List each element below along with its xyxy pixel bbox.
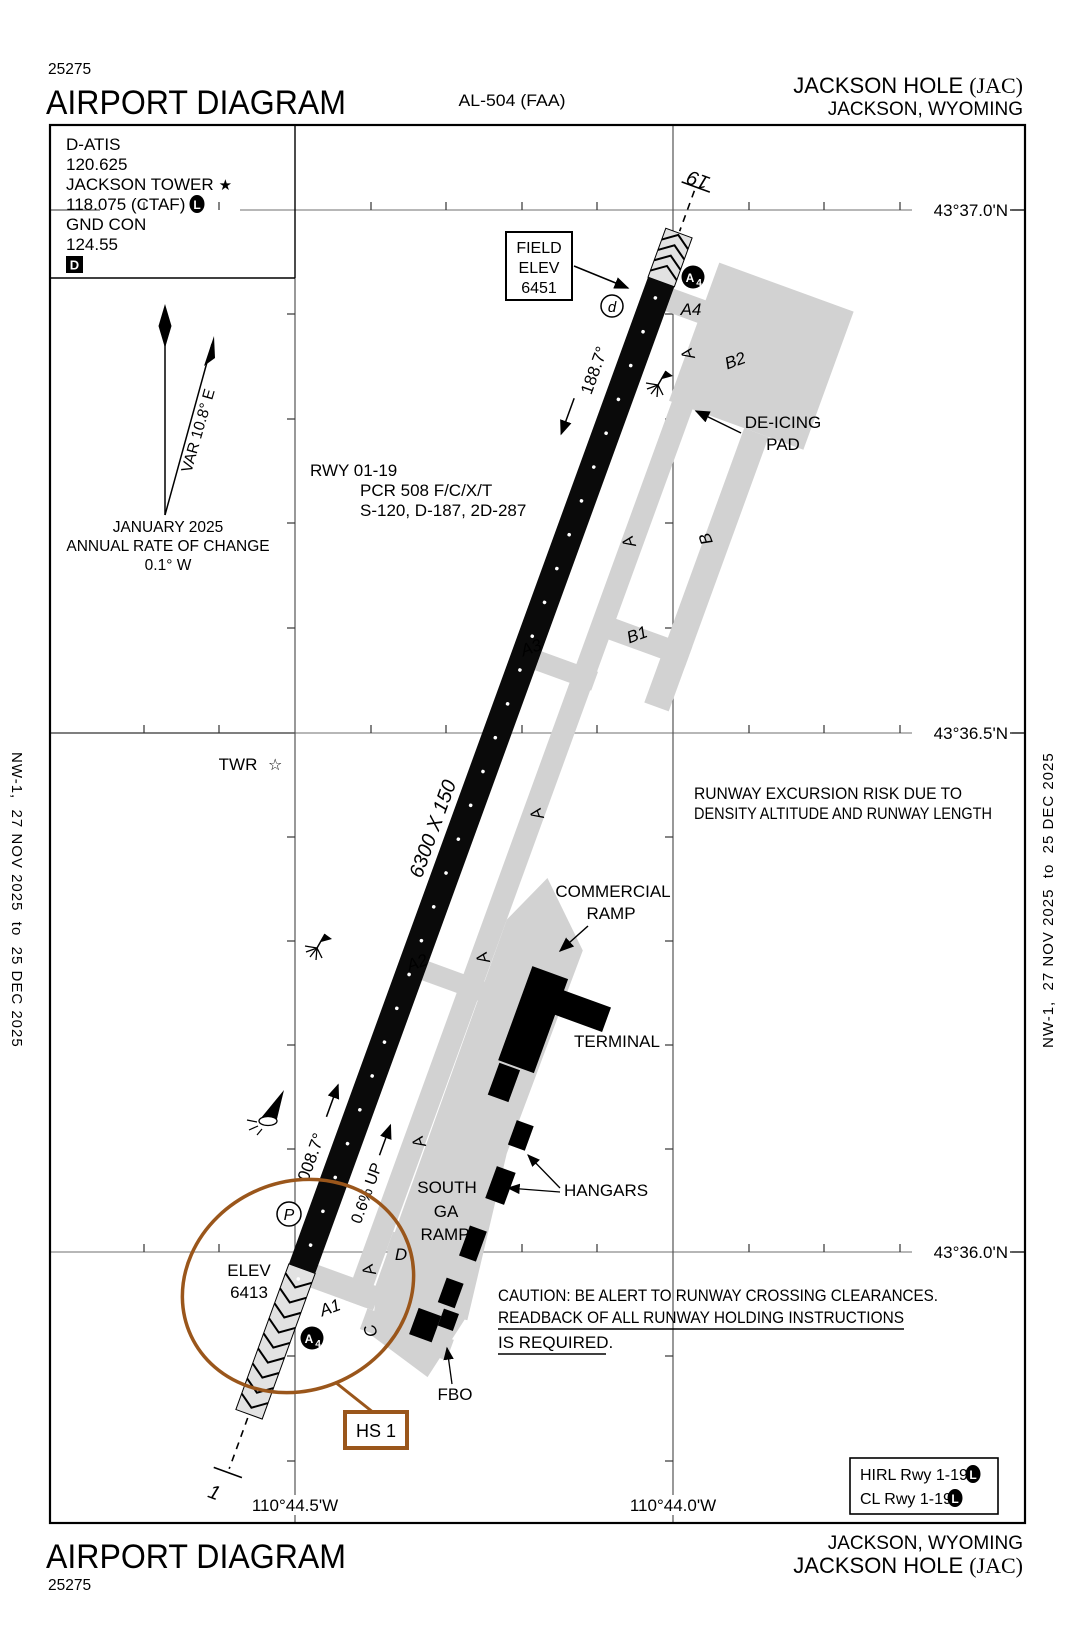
page-title: AIRPORT DIAGRAM bbox=[46, 84, 346, 122]
field-elev-line1: FIELD bbox=[516, 240, 561, 257]
variation-date: JANUARY 2025 bbox=[113, 519, 224, 536]
runway-data-line1: RWY 01-19 bbox=[310, 461, 397, 480]
runway-01-extension-dashes bbox=[229, 1418, 247, 1469]
runway-data-line2: PCR 508 F/C/X/T bbox=[360, 481, 492, 500]
terminal-concourse bbox=[553, 990, 611, 1032]
south-ga-ramp-label3: RAMP bbox=[420, 1225, 469, 1244]
chart-number-bottom: 25275 bbox=[48, 1577, 91, 1594]
runway-19-heading-arrow bbox=[561, 398, 574, 434]
runway-data-block: RWY 01-19 PCR 508 F/C/X/T S-120, D-187, … bbox=[310, 461, 526, 520]
edition-label-left: NW-1, 27 NOV 2025 to 25 DEC 2025 bbox=[8, 615, 25, 1185]
lon-label: 110°44.5'W bbox=[252, 1496, 338, 1515]
taxiway-a4-label: A4 bbox=[680, 300, 702, 319]
airport-id: (JAC) bbox=[969, 73, 1023, 98]
footer-airport-id: (JAC) bbox=[969, 1553, 1023, 1578]
hangars-arrow bbox=[528, 1155, 560, 1188]
runway-01-number: 1 bbox=[205, 1481, 223, 1505]
rwy01-elev-value: 6413 bbox=[230, 1283, 268, 1302]
glider-d-letter: d bbox=[608, 299, 617, 316]
runway-01-end-dash bbox=[214, 1467, 242, 1477]
lighting-l-letter: L bbox=[969, 1468, 976, 1482]
compass-rose: VAR 10.8° E JANUARY 2025 ANNUAL RATE OF … bbox=[66, 304, 269, 574]
airport-city: JACKSON, WYOMING bbox=[828, 99, 1023, 120]
rwy01-elev-label: ELEV bbox=[227, 1261, 271, 1280]
lighting-l-letter: L bbox=[193, 198, 200, 212]
taxiway-d-label: D bbox=[395, 1245, 407, 1264]
taxiway-labels: A A A A A A A4 A3 A2 A1 B B1 B2 C D bbox=[316, 300, 748, 1340]
runway-19-heading: 188.7° bbox=[577, 344, 612, 397]
lighting-l-letter: L bbox=[951, 1492, 958, 1506]
parachute-p-letter: P bbox=[284, 1207, 295, 1224]
fbo-arrow bbox=[447, 1348, 452, 1384]
annual-rate-label: ANNUAL RATE OF CHANGE bbox=[66, 538, 269, 555]
runway-19-number: 19 bbox=[684, 165, 712, 193]
datis-frequency: 120.625 bbox=[66, 155, 127, 174]
annual-rate-value: 0.1° W bbox=[145, 557, 192, 574]
datis-label: D-ATIS bbox=[66, 135, 120, 154]
field-elev-arrow bbox=[574, 266, 628, 288]
footer-airport-title: JACKSON HOLE(JAC) bbox=[793, 1553, 1023, 1578]
airport-diagram-page: 25275 AIRPORT DIAGRAM AL-504 (FAA) JACKS… bbox=[0, 0, 1076, 1650]
map-annotations: TWR ☆ DE-ICING PAD RUNWAY EXCURSION RISK… bbox=[219, 411, 992, 1404]
south-ga-ramp-label: SOUTH bbox=[417, 1178, 477, 1197]
hotspot-a4-circle-south: A 4 bbox=[301, 1327, 324, 1351]
tower-name: JACKSON TOWER bbox=[66, 175, 214, 194]
excursion-note-line1: RUNWAY EXCURSION RISK DUE TO bbox=[694, 784, 962, 803]
lighting-line2: CL Rwy 1-19 bbox=[860, 1491, 952, 1508]
airport-title: JACKSON HOLE(JAC) bbox=[793, 73, 1023, 98]
ground-label: GND CON bbox=[66, 215, 146, 234]
field-elevation-box: FIELD ELEV 6451 bbox=[506, 232, 628, 300]
hangars-label: HANGARS bbox=[564, 1181, 648, 1200]
chart-number-top: 25275 bbox=[48, 61, 91, 78]
tower-label: JACKSON TOWER★ bbox=[66, 175, 232, 194]
runway-01-heading-arrow bbox=[326, 1085, 338, 1117]
d-symbol-letter: D bbox=[70, 258, 79, 273]
runway-slope-arrow bbox=[379, 1125, 390, 1155]
lat-label: 43°36.5'N bbox=[934, 724, 1008, 743]
lon-label: 110°44.0'W bbox=[630, 1496, 716, 1515]
footer-city: JACKSON, WYOMING bbox=[828, 1533, 1023, 1554]
hotspot-a4-circle-north: A 4 bbox=[682, 266, 705, 290]
lighting-line1: HIRL Rwy 1-19 bbox=[860, 1467, 968, 1484]
airport-name: JACKSON HOLE bbox=[793, 73, 963, 98]
fbo-label: FBO bbox=[438, 1385, 473, 1404]
field-elev-line2: ELEV bbox=[519, 260, 560, 277]
approach-light-icon bbox=[646, 371, 673, 397]
taxiway-a bbox=[345, 308, 727, 1308]
true-north-arrow bbox=[159, 304, 172, 348]
hotspot-a: A bbox=[305, 1332, 314, 1346]
communications-box: D-ATIS 120.625 JACKSON TOWER★ 118.075 (C… bbox=[50, 135, 295, 278]
terminal-label: TERMINAL bbox=[574, 1032, 660, 1051]
edition-label-right: NW-1, 27 NOV 2025 to 25 DEC 2025 bbox=[1040, 615, 1057, 1185]
taxiway-a1-label: A1 bbox=[316, 1295, 343, 1320]
airport-diagram-chart: 25275 AIRPORT DIAGRAM AL-504 (FAA) JACKS… bbox=[0, 0, 1076, 1650]
runway-19-extension-dashes bbox=[680, 191, 695, 231]
caution-line1: CAUTION: BE ALERT TO RUNWAY CROSSING CLE… bbox=[498, 1286, 938, 1305]
deicing-pad-label: DE-ICING bbox=[745, 413, 822, 432]
field-elev-value: 6451 bbox=[521, 280, 557, 297]
south-ga-ramp-label2: GA bbox=[434, 1202, 459, 1221]
lat-label: 43°37.0'N bbox=[934, 201, 1008, 220]
commercial-ramp-label: COMMERCIAL bbox=[555, 882, 670, 901]
hotspot-box-label: HS 1 bbox=[356, 1421, 396, 1441]
hotspot-leader-line bbox=[335, 1382, 374, 1413]
tower-star-icon: ☆ bbox=[268, 755, 282, 774]
hotspot-4: 4 bbox=[696, 278, 702, 289]
footer-airport-name: JACKSON HOLE bbox=[793, 1553, 963, 1578]
hangars-arrow bbox=[508, 1188, 560, 1192]
tower-site-label: TWR bbox=[219, 755, 258, 774]
procedure-id: AL-504 (FAA) bbox=[459, 91, 566, 110]
lat-label: 43°36.0'N bbox=[934, 1243, 1008, 1262]
hotspot-a: A bbox=[686, 271, 695, 285]
tower-star-icon: ★ bbox=[219, 176, 232, 194]
airport-beacon-icon bbox=[247, 1090, 284, 1135]
caution-line3: IS REQUIRED. bbox=[498, 1333, 613, 1352]
hotspot-4: 4 bbox=[315, 1339, 321, 1350]
approach-light-icon bbox=[305, 934, 332, 960]
footer-title: AIRPORT DIAGRAM bbox=[46, 1538, 346, 1576]
runway-data-line3: S-120, D-187, 2D-287 bbox=[360, 501, 526, 520]
excursion-note-line2: DENSITY ALTITUDE AND RUNWAY LENGTH bbox=[694, 804, 992, 823]
runway-lighting-box: HIRL Rwy 1-19 L CL Rwy 1-19 L bbox=[850, 1458, 998, 1514]
caution-line2: READBACK OF ALL RUNWAY HOLDING INSTRUCTI… bbox=[498, 1308, 904, 1327]
ground-frequency: 124.55 bbox=[66, 235, 118, 254]
tower-frequency: 118.075 (CTAF) bbox=[66, 195, 185, 214]
commercial-ramp-label2: RAMP bbox=[586, 904, 635, 923]
deicing-pad-label2: PAD bbox=[766, 435, 800, 454]
magnetic-variation: VAR 10.8° E bbox=[179, 387, 219, 474]
